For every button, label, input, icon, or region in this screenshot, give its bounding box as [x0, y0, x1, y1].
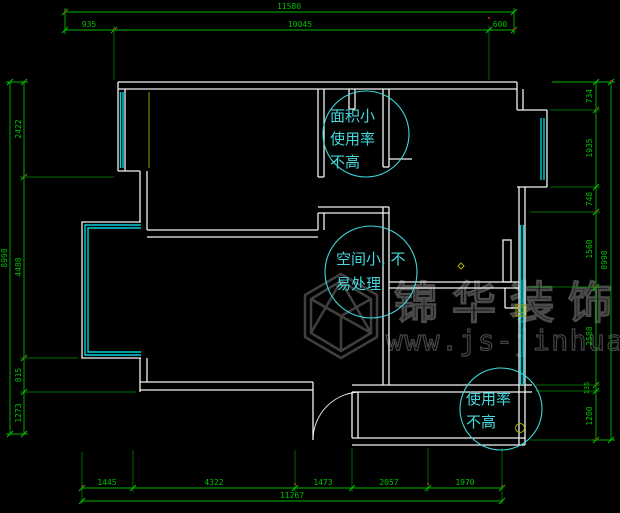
dim-bottom-seg2: 4322 [204, 478, 223, 487]
dim-bottom-seg4: 2057 [379, 478, 398, 487]
watermark-brand: 锦华装饰 [394, 278, 620, 329]
annotation-texts: 面积小 使用率 不高 空间小, 不 易处理 使用率 不高 [330, 107, 511, 431]
floor-plan-drawing: 锦华装饰 www.js-jinhua.com [0, 0, 620, 513]
dim-right-overall: 8998 [600, 250, 609, 269]
dim-right-seg7: 1200 [585, 406, 594, 425]
annotation1-line2: 使用率 [330, 130, 375, 148]
dim-left-seg2: 4488 [14, 257, 23, 276]
fixture-circle [516, 424, 525, 433]
dim-right-seg4: 1560 [585, 239, 594, 258]
dim-bottom-overall: 11267 [280, 491, 304, 500]
dim-top-seg1: 935 [82, 20, 97, 29]
dim-top-overall: 11580 [277, 2, 301, 11]
dim-right-seg2: 1935 [585, 138, 594, 157]
annotation1-line1: 面积小 [330, 107, 375, 125]
dim-right-seg3: 748 [585, 192, 594, 207]
dim-top-seg3: 600 [493, 20, 508, 29]
annotation3-line1: 使用率 [466, 390, 511, 408]
dim-right-seg6: 135 [583, 382, 591, 395]
wall-balcony [82, 222, 141, 358]
dim-left-seg3: 815 [14, 368, 23, 383]
dim-bottom-seg3: 1473 [313, 478, 332, 487]
duct-shaft [503, 240, 511, 282]
dim-left-seg4: 1273 [14, 403, 23, 422]
annotation3-line2: 不高 [466, 413, 496, 431]
dimension-labels: 11580 935 10045 600 1445 4322 1473 2057 … [0, 2, 609, 500]
annotation2-line1: 空间小, 不 [336, 250, 406, 268]
handle-diamond [458, 263, 464, 269]
entry-door-arc [313, 392, 361, 440]
dim-bottom-seg1: 1445 [97, 478, 116, 487]
cad-canvas: 锦华装饰 www.js-jinhua.com [0, 0, 620, 513]
dim-left-overall: 8998 [0, 248, 9, 267]
annotation2-line2: 易处理 [336, 275, 381, 293]
dim-bottom-seg5: 1970 [455, 478, 474, 487]
dim-top-seg2: 10045 [288, 20, 312, 29]
dim-right-seg5: 2588 [585, 326, 594, 345]
dim-right-seg1: 734 [585, 89, 594, 104]
dim-left-seg1: 2422 [14, 119, 23, 138]
annotation1-line3: 不高 [330, 153, 360, 171]
window-balcony [85, 225, 141, 355]
